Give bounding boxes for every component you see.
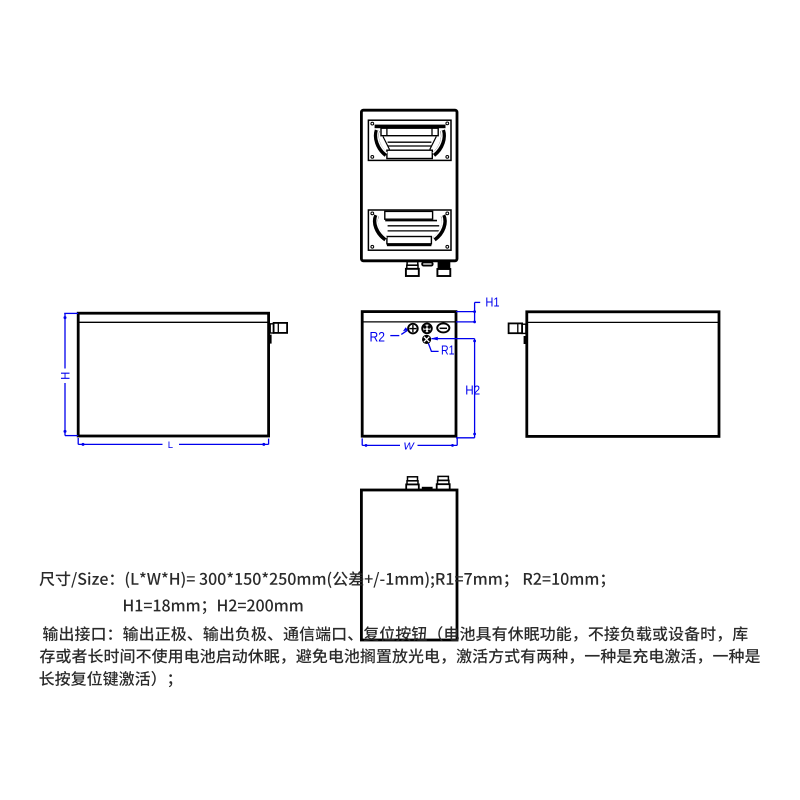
svg-text:H2: H2 (465, 383, 480, 398)
svg-text:W: W (403, 441, 415, 452)
svg-text:R2: R2 (370, 330, 386, 345)
svg-text:R1: R1 (441, 343, 455, 358)
svg-text:H: H (58, 372, 72, 380)
svg-text:L: L (168, 440, 173, 451)
svg-text:H1: H1 (485, 294, 499, 309)
